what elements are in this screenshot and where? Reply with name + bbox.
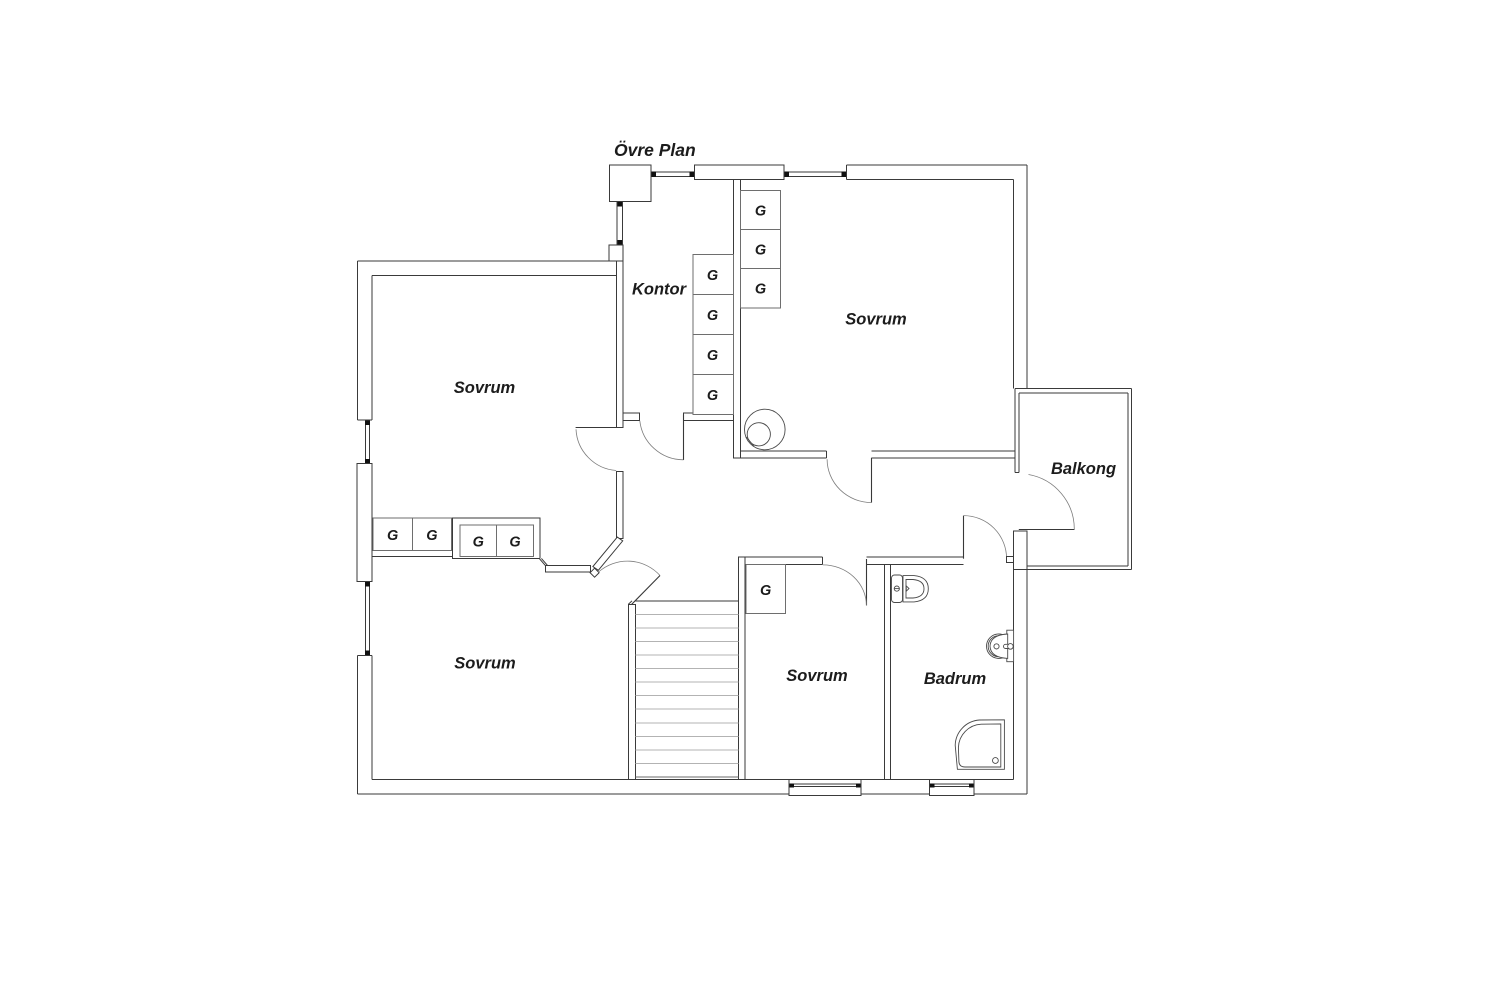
svg-text:Sovrum: Sovrum: [454, 379, 515, 397]
svg-text:Sovrum: Sovrum: [454, 655, 515, 673]
svg-text:Sovrum: Sovrum: [845, 311, 906, 329]
svg-text:G: G: [707, 348, 718, 364]
svg-text:G: G: [509, 535, 520, 551]
svg-text:G: G: [707, 308, 718, 324]
svg-text:G: G: [473, 535, 484, 551]
svg-text:G: G: [387, 528, 398, 544]
svg-text:G: G: [755, 282, 766, 298]
svg-text:G: G: [426, 528, 437, 544]
svg-text:G: G: [707, 388, 718, 404]
svg-text:Kontor: Kontor: [632, 281, 688, 299]
svg-text:Balkong: Balkong: [1051, 460, 1116, 478]
svg-text:G: G: [755, 243, 766, 259]
svg-text:G: G: [755, 204, 766, 220]
svg-text:Övre Plan: Övre Plan: [614, 140, 696, 160]
svg-text:G: G: [707, 268, 718, 284]
svg-text:G: G: [760, 583, 771, 599]
svg-text:Sovrum: Sovrum: [786, 667, 847, 685]
svg-text:Badrum: Badrum: [924, 670, 986, 688]
